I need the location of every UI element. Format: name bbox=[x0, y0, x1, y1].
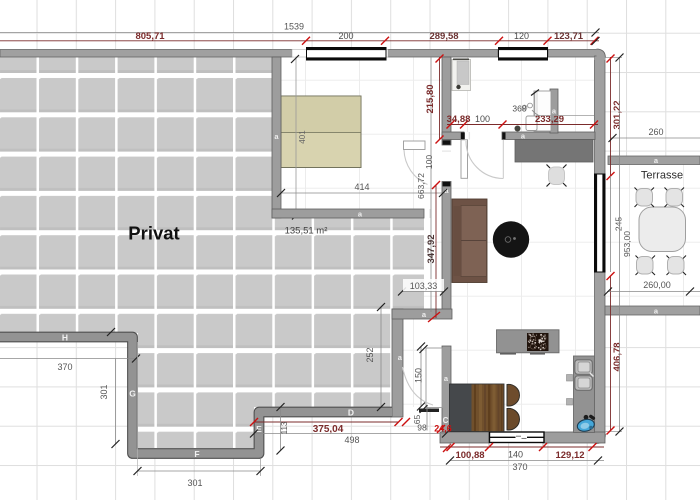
svg-text:100,88: 100,88 bbox=[455, 450, 484, 461]
svg-text:953,00: 953,00 bbox=[622, 231, 632, 257]
svg-text:65: 65 bbox=[412, 415, 422, 425]
svg-text:301,22: 301,22 bbox=[612, 100, 623, 129]
svg-text:1539: 1539 bbox=[284, 22, 304, 32]
svg-text:D: D bbox=[348, 408, 354, 418]
svg-text:805,71: 805,71 bbox=[135, 31, 165, 42]
svg-text:301: 301 bbox=[99, 384, 109, 399]
svg-text:260,00: 260,00 bbox=[643, 280, 671, 290]
svg-text:G: G bbox=[129, 389, 136, 399]
svg-text:289,58: 289,58 bbox=[429, 31, 458, 42]
svg-text:34,88: 34,88 bbox=[447, 114, 471, 125]
svg-text:347,92: 347,92 bbox=[426, 234, 437, 263]
svg-text:H: H bbox=[62, 333, 68, 343]
svg-text:140: 140 bbox=[508, 450, 523, 460]
svg-text:245: 245 bbox=[613, 217, 623, 231]
svg-text:103,33: 103,33 bbox=[410, 281, 438, 291]
svg-text:123,71: 123,71 bbox=[554, 31, 584, 42]
svg-text:120: 120 bbox=[514, 31, 529, 41]
svg-text:370: 370 bbox=[57, 362, 72, 372]
svg-text:252: 252 bbox=[365, 347, 375, 362]
svg-text:370: 370 bbox=[512, 462, 527, 472]
svg-text:Privat: Privat bbox=[128, 223, 179, 244]
svg-text:E: E bbox=[256, 424, 262, 434]
svg-text:F: F bbox=[194, 449, 199, 459]
svg-text:663,72: 663,72 bbox=[416, 173, 426, 199]
svg-text:135,51 m²: 135,51 m² bbox=[285, 226, 328, 237]
svg-text:401: 401 bbox=[298, 130, 307, 144]
svg-text:200: 200 bbox=[338, 31, 353, 41]
svg-text:414: 414 bbox=[354, 182, 369, 192]
svg-text:129,12: 129,12 bbox=[555, 450, 584, 461]
svg-text:100: 100 bbox=[424, 155, 434, 169]
svg-text:Terrasse: Terrasse bbox=[641, 170, 683, 182]
svg-text:215,80: 215,80 bbox=[425, 84, 436, 113]
svg-text:301: 301 bbox=[187, 478, 202, 488]
svg-text:260: 260 bbox=[648, 127, 663, 137]
svg-text:24,6: 24,6 bbox=[434, 424, 452, 434]
svg-text:100: 100 bbox=[475, 114, 490, 124]
svg-text:113: 113 bbox=[280, 421, 289, 434]
svg-text:406,78: 406,78 bbox=[612, 342, 623, 371]
svg-text:150: 150 bbox=[413, 368, 423, 383]
svg-text:498: 498 bbox=[344, 435, 359, 445]
